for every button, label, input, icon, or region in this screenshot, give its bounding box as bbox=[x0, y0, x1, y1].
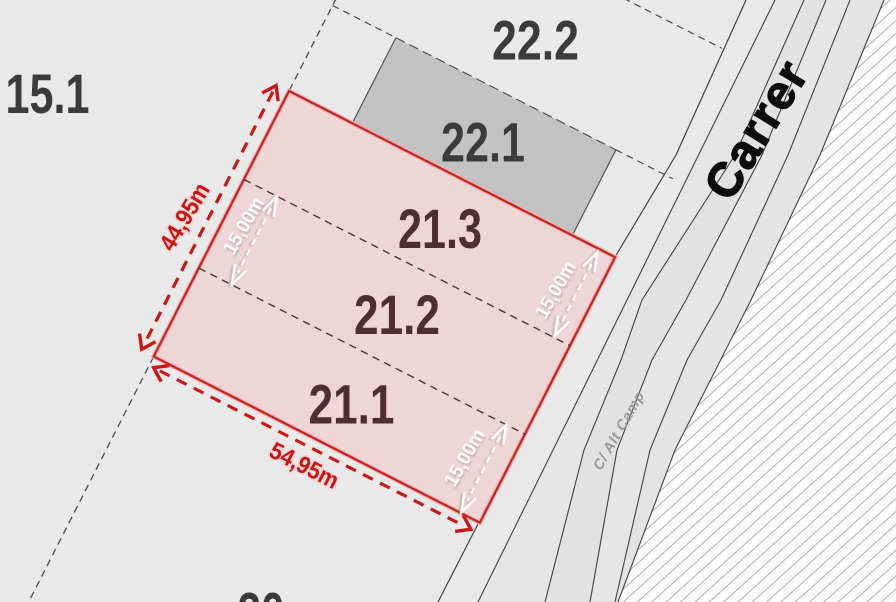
svg-text:20: 20 bbox=[238, 581, 285, 602]
svg-text:22.1: 22.1 bbox=[441, 111, 525, 174]
svg-text:21.3: 21.3 bbox=[398, 197, 482, 260]
svg-text:21.2: 21.2 bbox=[354, 283, 440, 346]
svg-text:22.2: 22.2 bbox=[492, 9, 579, 72]
svg-text:15.1: 15.1 bbox=[6, 62, 90, 125]
svg-text:21.1: 21.1 bbox=[309, 373, 395, 436]
